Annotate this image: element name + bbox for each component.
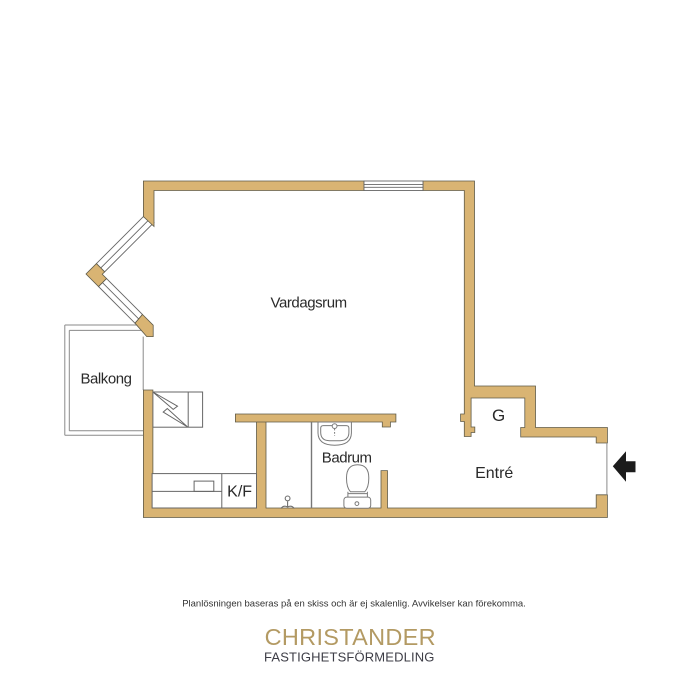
- svg-text:CHRISTANDER: CHRISTANDER: [265, 624, 436, 650]
- svg-text:Badrum: Badrum: [322, 449, 372, 466]
- svg-text:Balkong: Balkong: [80, 371, 131, 388]
- svg-text:K/F: K/F: [227, 484, 252, 501]
- svg-text:G: G: [492, 406, 505, 425]
- svg-text:Entré: Entré: [475, 465, 513, 482]
- svg-text:Vardagsrum: Vardagsrum: [271, 295, 347, 312]
- svg-text:FASTIGHETSFÖRMEDLING: FASTIGHETSFÖRMEDLING: [264, 650, 435, 665]
- svg-text:Planlösningen baseras på en sk: Planlösningen baseras på en skiss och är…: [182, 599, 526, 610]
